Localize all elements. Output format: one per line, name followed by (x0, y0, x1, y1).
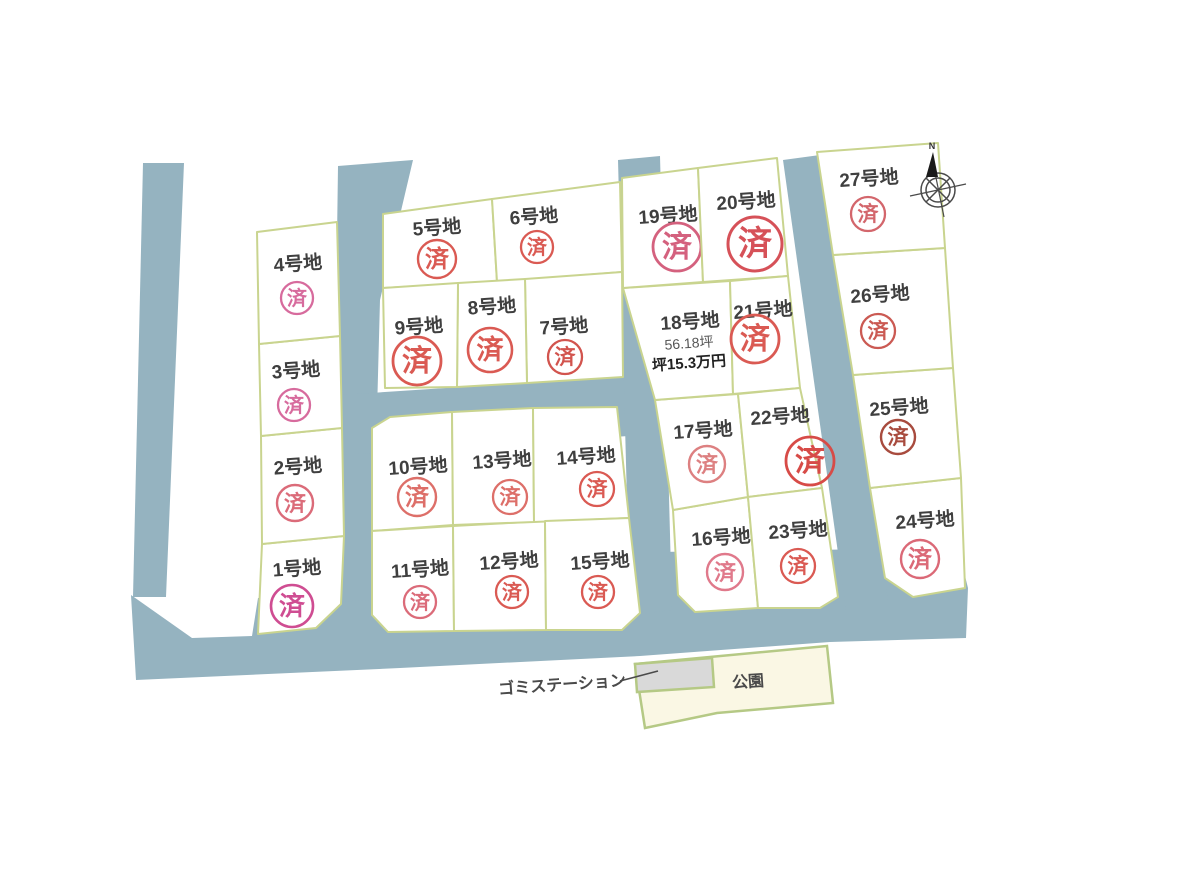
lot-boundary (492, 182, 622, 282)
lot-number-label: 7号地 (539, 313, 589, 339)
lot-boundary (673, 497, 758, 612)
lot-boundary (833, 248, 953, 375)
lot-19[interactable]: 19号地 済 (622, 168, 703, 288)
sold-stamp-text: 済 (555, 345, 577, 369)
lot-boundary (738, 388, 822, 497)
sold-stamp-text: 済 (788, 554, 810, 578)
lot-4[interactable]: 4号地 済 (257, 222, 340, 344)
lot-boundary (453, 521, 546, 631)
lot-number-label: 5号地 (412, 214, 462, 240)
garbage-station-label: ゴミステーション (498, 671, 627, 699)
lot-area-label: 56.18坪 (664, 333, 714, 352)
sold-stamp-text: 済 (868, 319, 890, 343)
sold-stamp-text: 済 (405, 483, 430, 511)
lot-number-label: 6号地 (509, 203, 559, 229)
subdivision-lot-map: 公園 ゴミステーション 1号地 済 2号地 済 3号地 済 (0, 0, 1200, 882)
lot-8[interactable]: 8号地 済 (457, 279, 527, 387)
sold-stamp-text: 済 (284, 393, 305, 417)
lot-11[interactable]: 11号地 済 (372, 526, 454, 632)
lot-7[interactable]: 7号地 済 (525, 272, 623, 383)
lot-17[interactable]: 17号地 済 (655, 394, 748, 510)
sold-stamp-text: 済 (402, 345, 433, 378)
lot-20[interactable]: 20号地 済 (698, 158, 788, 282)
lot-15[interactable]: 15号地 済 (545, 518, 640, 630)
lot-number-label: 2号地 (273, 453, 323, 479)
sold-stamp-text: 済 (888, 425, 910, 449)
lot-26[interactable]: 26号地 済 (833, 248, 953, 375)
compass-north-label: N (929, 141, 936, 151)
lot-number-label: 4号地 (273, 250, 323, 276)
lot-boundary (817, 143, 945, 255)
lot-21[interactable]: 21号地 済 (730, 276, 800, 394)
sold-stamp-text: 済 (502, 580, 523, 604)
sold-stamp-text: 済 (410, 590, 431, 614)
sold-stamp-text: 済 (714, 560, 737, 585)
sold-stamp-text: 済 (662, 231, 693, 264)
sold-stamp-text: 済 (287, 286, 308, 310)
sold-stamp-text: 済 (587, 477, 609, 501)
lot-25[interactable]: 25号地 済 (853, 368, 961, 488)
sold-stamp-text: 済 (588, 580, 609, 604)
lot-3[interactable]: 3号地 済 (259, 336, 342, 436)
lot-2[interactable]: 2号地 済 (261, 428, 344, 544)
lot-boundary (383, 199, 497, 288)
lot-number-label: 1号地 (272, 555, 322, 581)
sold-stamp-text: 済 (500, 485, 522, 509)
sold-stamp-text: 済 (279, 591, 306, 621)
lot-number-label: 8号地 (467, 293, 517, 319)
sold-stamp-text: 済 (425, 245, 450, 273)
lot-10[interactable]: 10号地 済 (372, 412, 453, 531)
sold-stamp-text: 済 (858, 202, 880, 226)
sold-stamp-text: 済 (908, 545, 933, 573)
lot-number-label: 3号地 (271, 357, 321, 383)
lot-16[interactable]: 16号地 済 (673, 497, 758, 612)
sold-stamp-text: 済 (477, 334, 505, 365)
park-label: 公園 (731, 672, 764, 692)
lot-14[interactable]: 14号地 済 (533, 407, 629, 522)
sold-stamp-text: 済 (284, 491, 307, 516)
sold-stamp-text: 済 (795, 445, 826, 478)
lot-boundary (748, 488, 838, 608)
lot-27[interactable]: 27号地 済 (817, 143, 945, 255)
sold-stamp-text: 済 (527, 235, 548, 259)
sold-stamp-text: 済 (738, 225, 773, 263)
lot-23[interactable]: 23号地 済 (748, 488, 838, 608)
lot-12[interactable]: 12号地 済 (453, 521, 546, 631)
lot-boundary (259, 336, 342, 436)
garbage-station-boundary (635, 658, 714, 692)
lot-13[interactable]: 13号地 済 (452, 408, 534, 525)
lot-5[interactable]: 5号地 済 (383, 199, 497, 288)
road-left-vertical (133, 163, 184, 597)
sold-stamp-text: 済 (696, 452, 719, 477)
sold-stamp-text: 済 (740, 323, 771, 356)
lot-boundary (545, 518, 640, 630)
lot-9[interactable]: 9号地 済 (383, 283, 458, 388)
lot-6[interactable]: 6号地 済 (492, 182, 622, 282)
